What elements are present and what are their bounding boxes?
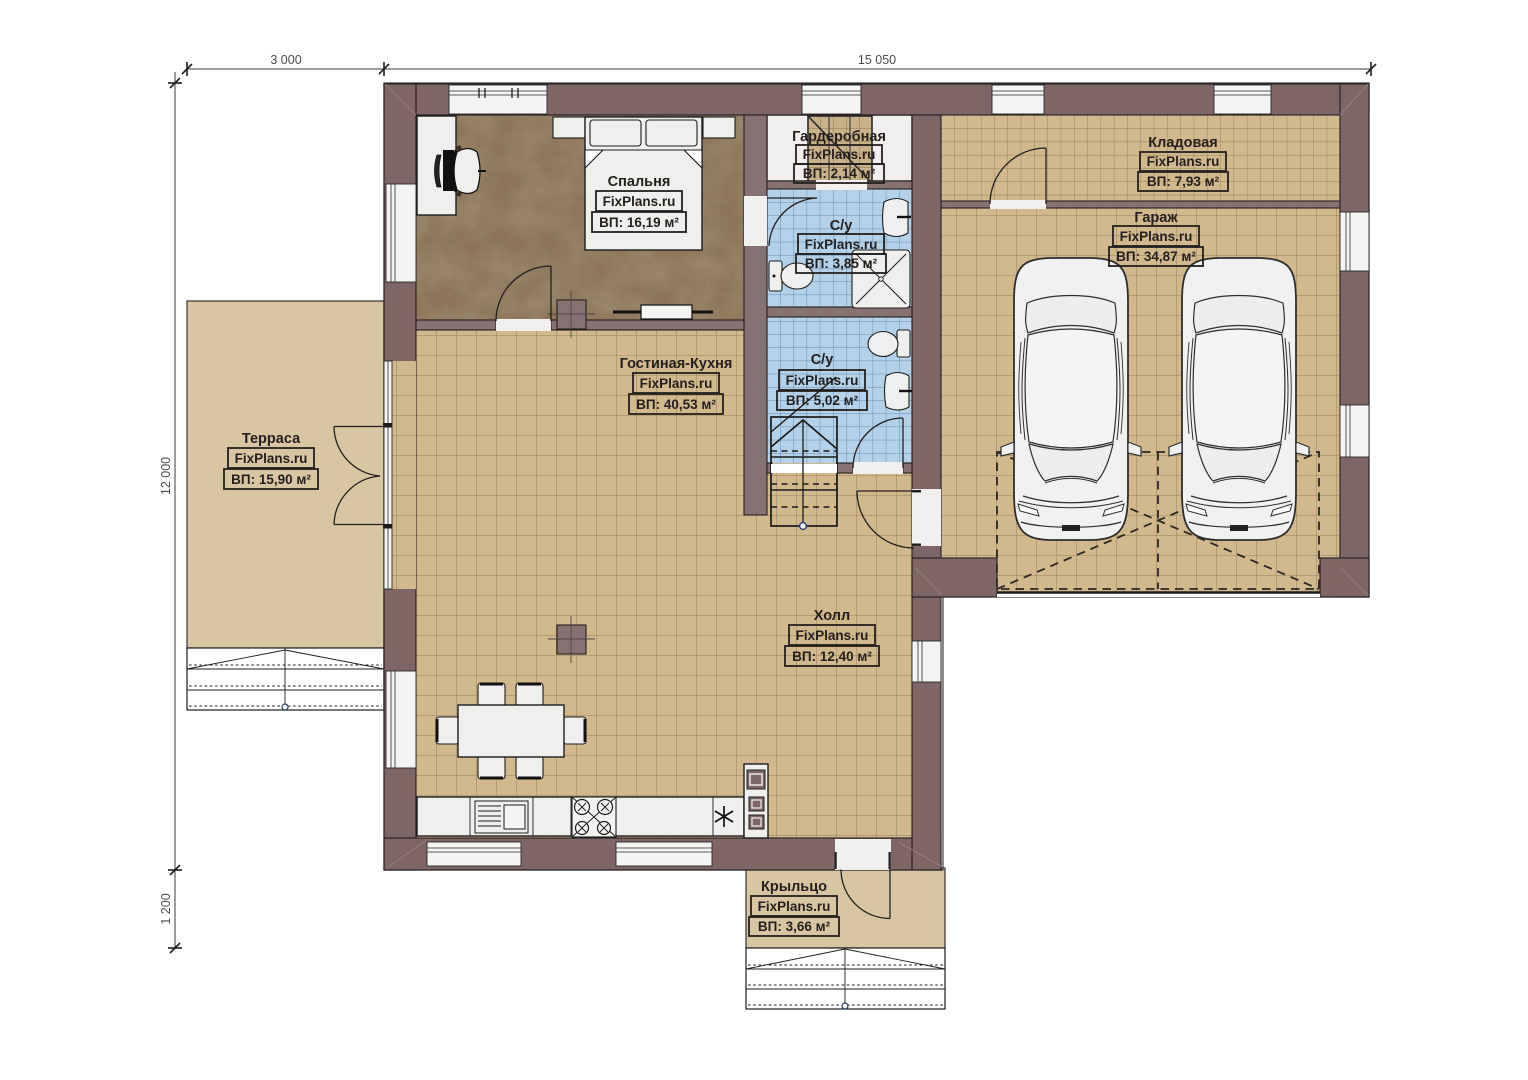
svg-text:FixPlans.ru: FixPlans.ru — [803, 147, 876, 162]
svg-text:FixPlans.ru: FixPlans.ru — [235, 451, 308, 466]
svg-text:12 000: 12 000 — [159, 457, 173, 495]
svg-text:ВП: 3,85 м²: ВП: 3,85 м² — [805, 256, 878, 271]
svg-text:15 050: 15 050 — [858, 53, 896, 67]
svg-text:Крыльцо: Крыльцо — [761, 879, 827, 895]
svg-text:ВП: 7,93 м²: ВП: 7,93 м² — [1147, 174, 1220, 189]
svg-text:ВП: 3,66 м²: ВП: 3,66 м² — [758, 919, 831, 934]
svg-text:FixPlans.ru: FixPlans.ru — [1120, 229, 1193, 244]
svg-text:FixPlans.ru: FixPlans.ru — [603, 194, 676, 209]
svg-text:ВП: 2,14 м²: ВП: 2,14 м² — [803, 166, 876, 181]
svg-text:Гостиная-Кухня: Гостиная-Кухня — [620, 356, 733, 372]
svg-text:ВП: 5,02 м²: ВП: 5,02 м² — [786, 393, 859, 408]
svg-text:ВП: 16,19 м²: ВП: 16,19 м² — [599, 215, 679, 230]
svg-text:Гараж: Гараж — [1134, 210, 1178, 226]
svg-text:Гардеробная: Гардеробная — [792, 129, 886, 145]
svg-text:FixPlans.ru: FixPlans.ru — [805, 237, 878, 252]
svg-text:FixPlans.ru: FixPlans.ru — [640, 376, 713, 391]
svg-text:Спальня: Спальня — [608, 174, 671, 190]
svg-text:ВП: 15,90 м²: ВП: 15,90 м² — [231, 472, 311, 487]
svg-text:1 200: 1 200 — [159, 893, 173, 924]
svg-text:ВП: 12,40 м²: ВП: 12,40 м² — [792, 649, 872, 664]
svg-text:Терраса: Терраса — [242, 431, 301, 447]
svg-text:FixPlans.ru: FixPlans.ru — [1147, 154, 1220, 169]
svg-text:3 000: 3 000 — [270, 53, 301, 67]
svg-text:ВП: 34,87 м²: ВП: 34,87 м² — [1116, 249, 1196, 264]
svg-text:С/у: С/у — [830, 218, 853, 234]
svg-text:FixPlans.ru: FixPlans.ru — [758, 899, 831, 914]
svg-text:Кладовая: Кладовая — [1148, 135, 1217, 151]
svg-text:FixPlans.ru: FixPlans.ru — [786, 373, 859, 388]
svg-text:ВП: 40,53 м²: ВП: 40,53 м² — [636, 397, 716, 412]
svg-text:Холл: Холл — [814, 608, 850, 624]
svg-text:FixPlans.ru: FixPlans.ru — [796, 628, 869, 643]
svg-text:С/у: С/у — [811, 352, 834, 368]
